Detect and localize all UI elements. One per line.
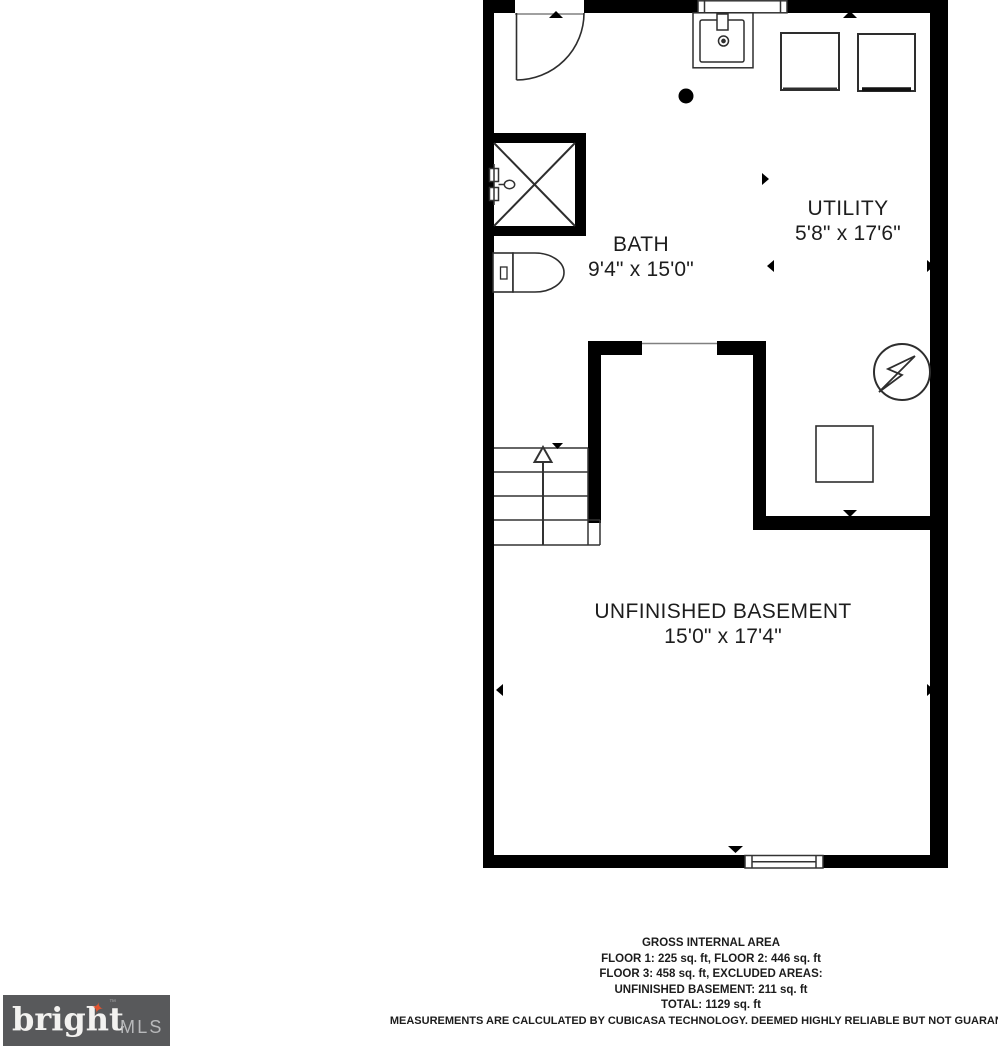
room-dims: 15'0" x 17'4" <box>594 624 851 649</box>
room-label-bath: BATH 9'4" x 15'0" <box>588 232 694 282</box>
marker-down <box>843 510 857 517</box>
area-summary-line: FLOOR 1: 225 sq. ft, FLOOR 2: 446 sq. ft <box>390 952 998 968</box>
area-summary-total: TOTAL: 1129 sq. ft <box>390 998 998 1014</box>
window-icon <box>745 856 823 869</box>
sink-faucet <box>717 14 728 30</box>
dryer-icon <box>858 34 915 91</box>
toilet-button <box>501 267 508 279</box>
door-swing-icon <box>517 13 585 80</box>
valve-knob <box>504 180 514 188</box>
area-summary-line: UNFINISHED BASEMENT: 211 sq. ft <box>390 983 998 999</box>
room-name: UNFINISHED BASEMENT <box>594 599 851 624</box>
wall-segment <box>753 341 766 530</box>
area-summary-line: FLOOR 3: 458 sq. ft, EXCLUDED AREAS: <box>390 967 998 983</box>
wall-segment <box>823 855 948 868</box>
interior-walls <box>483 133 948 530</box>
room-name: BATH <box>588 232 694 257</box>
disclaimer-text: MEASUREMENTS ARE CALCULATED BY CUBICASA … <box>390 1014 998 1030</box>
washer-icon <box>781 33 839 90</box>
wall-segment <box>483 0 494 868</box>
floorplan-page: BATH 9'4" x 15'0" UTILITY 5'8" x 17'6" U… <box>0 0 998 1046</box>
logo-brand-text: bright <box>12 993 124 1045</box>
toilet-bowl <box>513 253 564 292</box>
wall-segment <box>753 516 948 530</box>
water-heater-icon <box>874 344 930 400</box>
area-summary-title: GROSS INTERNAL AREA <box>390 936 998 952</box>
wall-segment <box>575 133 586 236</box>
wall-segment <box>483 133 586 143</box>
bright-mls-logo: bright ✦ ™ MLS <box>3 995 170 1046</box>
wall-segment <box>584 0 698 13</box>
washer-body <box>781 33 839 90</box>
stairs-direction-arrowhead <box>535 447 552 462</box>
room-name: UTILITY <box>795 196 901 221</box>
stairs-up-icon <box>494 447 600 545</box>
wall-segment <box>483 855 745 868</box>
marker-right <box>762 173 769 185</box>
wall-segment <box>787 0 948 13</box>
shower-valve-icon <box>490 164 515 205</box>
marker-left <box>496 684 503 696</box>
door-arc <box>517 13 585 80</box>
sink-drain-dot <box>722 39 725 42</box>
wall-segment <box>483 226 586 236</box>
floor-plan-drawing <box>0 0 998 1046</box>
marker-down <box>728 846 743 853</box>
sink-icon <box>693 13 753 68</box>
window-icon <box>698 0 787 13</box>
room-dims: 9'4" x 15'0" <box>588 257 694 282</box>
toilet-icon <box>493 253 564 292</box>
logo-mls-text: MLS <box>120 1017 164 1038</box>
floor-drain-icon <box>679 89 694 104</box>
room-label-unfinished-basement: UNFINISHED BASEMENT 15'0" x 17'4" <box>594 599 851 649</box>
furnace-icon <box>816 426 873 482</box>
door-openings <box>515 14 717 344</box>
wall-segment <box>930 0 948 868</box>
dryer-body <box>858 34 915 91</box>
window-frame <box>698 1 787 13</box>
water-heater-circle <box>874 344 930 400</box>
room-dims: 5'8" x 17'6" <box>795 221 901 246</box>
room-label-utility: UTILITY 5'8" x 17'6" <box>795 196 901 246</box>
trademark-symbol: ™ <box>109 999 116 1006</box>
wall-segment <box>588 341 601 523</box>
area-summary: GROSS INTERNAL AREA FLOOR 1: 225 sq. ft,… <box>390 936 998 1030</box>
marker-left <box>767 260 774 272</box>
outer-walls <box>483 0 948 868</box>
